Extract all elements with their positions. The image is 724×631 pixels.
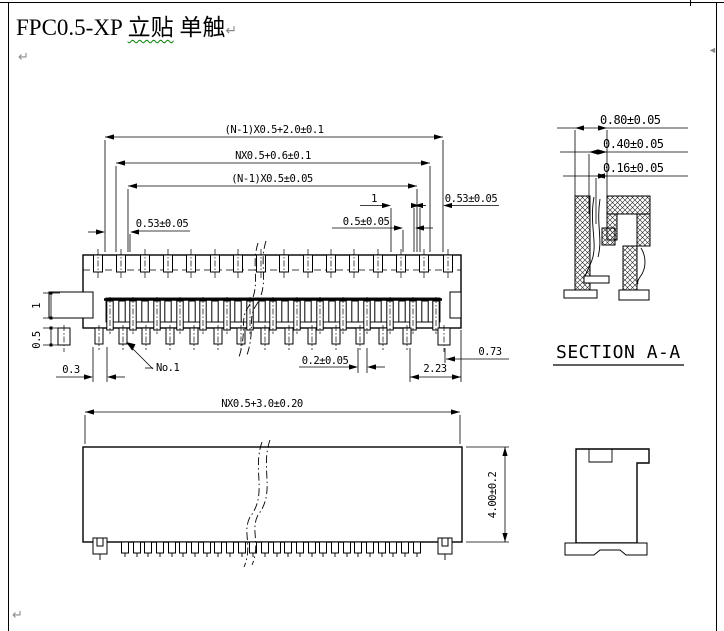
document-page: FPC0.5-XP 立贴 单触↵ ↵ ↵ ◄: [0, 0, 724, 631]
dim-label: 0.73: [478, 346, 501, 358]
dimension-offset: 0.3: [56, 347, 125, 382]
dimension-front-height: 4.00±0.2: [466, 447, 509, 542]
dim-label: 0.53±0.05: [445, 193, 498, 205]
pin1-callout: No.1: [126, 342, 179, 374]
contact-strip: [104, 297, 442, 334]
dimension-tail: 2.23: [410, 330, 461, 382]
dimension-housing: NX0.5+0.6±0.1: [116, 150, 430, 252]
dimension-pitch-05: 0.5±0.05: [332, 216, 433, 252]
section-view: 0.80±0.05 0.40±0.05 0.16±0.05: [553, 113, 688, 365]
dim-label: (N-1)X0.5±0.05: [231, 173, 313, 185]
technical-drawing: (N-1)X0.5+2.0±0.1 NX0.5+0.6±0.1 (N-1)X0.…: [0, 0, 724, 631]
top-view: (N-1)X0.5+2.0±0.1 NX0.5+0.6±0.1 (N-1)X0.…: [31, 124, 509, 382]
dim-label: NX0.5+3.0±0.20: [221, 398, 303, 410]
dim-label: 0.80±0.05: [600, 113, 661, 127]
section-label: SECTION A-A: [556, 342, 681, 363]
dim-label: NX0.5+0.6±0.1: [235, 150, 311, 162]
dim-label: (N-1)X0.5+2.0±0.1: [225, 124, 324, 136]
dimension-tail-edge: 0.73: [445, 346, 509, 363]
side-view: [565, 449, 649, 555]
side-body-outline: [576, 449, 649, 543]
side-base-flange: [565, 543, 647, 555]
front-body-outline: [83, 447, 462, 542]
mounting-ear-left: [49, 292, 93, 318]
mounting-pad-right: [450, 292, 461, 318]
dim-label: 0.3: [62, 364, 80, 376]
dim-label: 0.5±0.05: [343, 216, 390, 228]
dim-label: 1: [371, 193, 377, 205]
dim-label: 0.40±0.05: [603, 137, 664, 151]
dimension-foot-height: 0.5: [31, 327, 60, 349]
dimension-edge-right: 0.53±0.05: [411, 193, 499, 252]
dimension-pin-width: 0.2±0.05: [299, 348, 385, 373]
dim-label: 0.5: [31, 331, 43, 349]
pin1-label: No.1: [156, 362, 179, 374]
dim-label: 0.2±0.05: [302, 355, 349, 367]
front-view: NX0.5+3.0±0.20 4.: [83, 398, 509, 567]
dimension-overall: (N-1)X0.5+2.0±0.1: [105, 124, 443, 252]
dim-label: 2.23: [423, 363, 446, 375]
solder-foot-right: [619, 290, 649, 300]
dim-label: 0.16±0.05: [603, 161, 664, 175]
dimension-edge-left: 0.53±0.05: [88, 218, 190, 252]
dim-label: 4.00±0.2: [487, 472, 499, 519]
section-body: [564, 196, 650, 300]
dimension-contacts: (N-1)X0.5±0.05: [128, 173, 417, 252]
dimension-front-width: NX0.5+3.0±0.20: [85, 398, 460, 444]
dim-label: 1: [31, 303, 43, 309]
dim-label: 0.53±0.05: [136, 218, 189, 230]
solder-foot-left: [564, 290, 597, 298]
